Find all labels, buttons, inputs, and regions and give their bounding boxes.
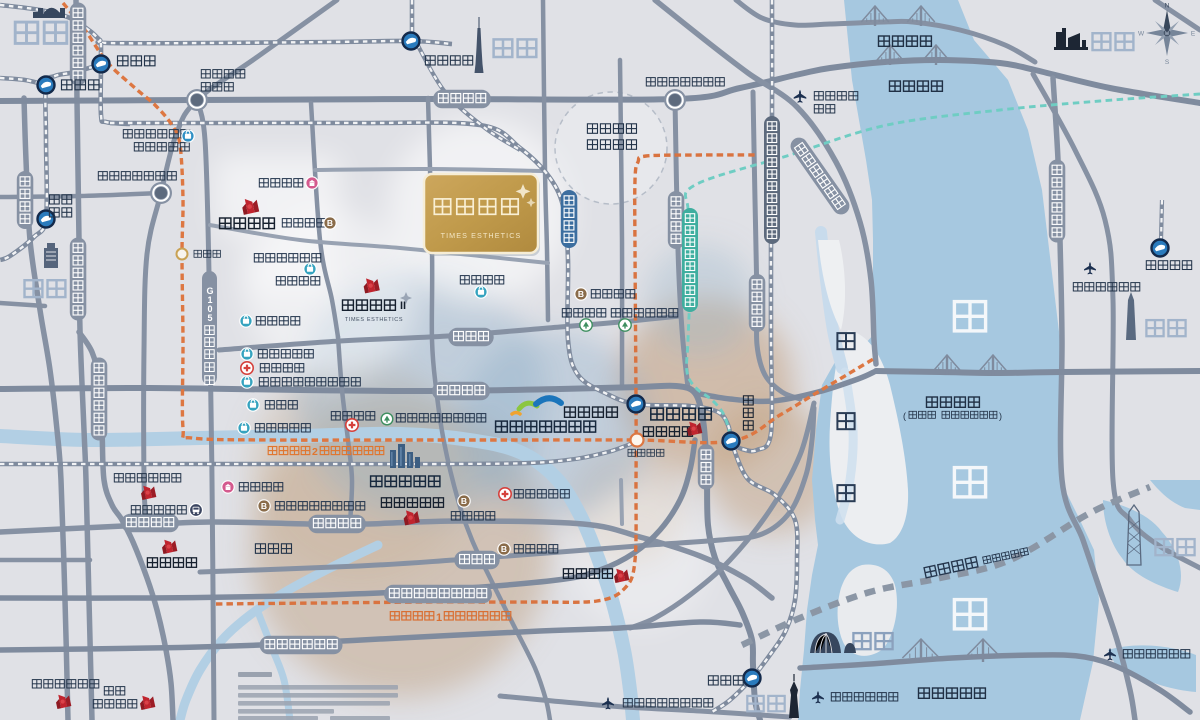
svg-text:B: B (501, 544, 507, 554)
svg-text:TIMES ESTHETICS: TIMES ESTHETICS (345, 317, 403, 323)
svg-text:W: W (1138, 30, 1145, 37)
svg-text:5: 5 (207, 313, 212, 323)
svg-text:1: 1 (436, 612, 442, 624)
svg-text:(: ( (903, 411, 906, 421)
svg-text:B: B (261, 501, 267, 511)
svg-text:B: B (578, 289, 584, 299)
svg-text:TIMES ESTHETICS: TIMES ESTHETICS (441, 231, 522, 240)
svg-text:2: 2 (312, 446, 318, 458)
svg-text:): ) (999, 411, 1002, 421)
svg-text:B: B (461, 496, 467, 506)
svg-text:B: B (327, 218, 333, 228)
svg-text:S: S (1165, 59, 1170, 66)
svg-text:E: E (1191, 30, 1196, 37)
svg-text:N: N (1165, 3, 1170, 10)
